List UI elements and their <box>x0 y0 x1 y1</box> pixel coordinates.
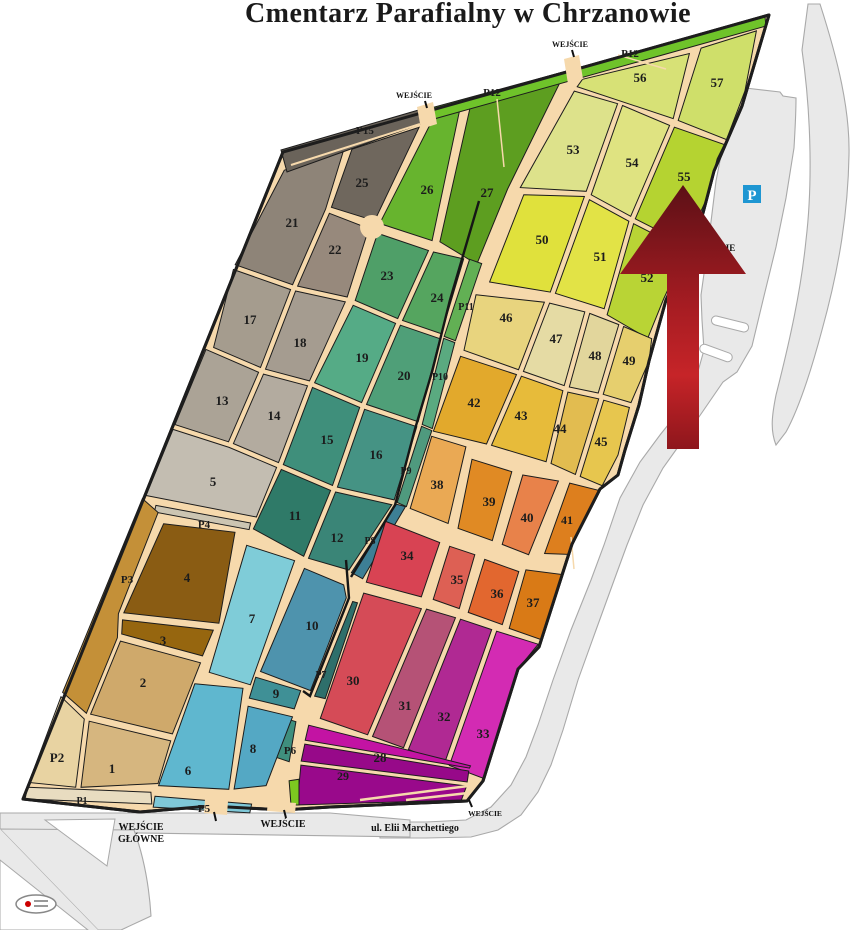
svg-text:51: 51 <box>594 249 607 264</box>
svg-text:53: 53 <box>567 142 581 157</box>
svg-text:45: 45 <box>595 434 609 449</box>
svg-text:1: 1 <box>109 761 116 776</box>
svg-text:18: 18 <box>294 335 308 350</box>
svg-text:33: 33 <box>477 726 491 741</box>
svg-text:11: 11 <box>289 508 301 523</box>
svg-text:P11: P11 <box>458 302 474 313</box>
svg-text:36: 36 <box>491 586 505 601</box>
svg-text:P4: P4 <box>198 519 211 531</box>
svg-text:15: 15 <box>321 432 335 447</box>
svg-text:WEJŚCIE: WEJŚCIE <box>118 821 163 833</box>
svg-text:22: 22 <box>329 242 342 257</box>
svg-text:55: 55 <box>678 169 692 184</box>
svg-text:41: 41 <box>561 513 573 527</box>
svg-text:56: 56 <box>634 70 648 85</box>
svg-text:35: 35 <box>451 572 465 587</box>
svg-text:P12: P12 <box>621 48 639 60</box>
svg-text:16: 16 <box>370 447 384 462</box>
svg-text:40: 40 <box>521 510 534 525</box>
svg-text:ul. Elii Marchettiego: ul. Elii Marchettiego <box>371 823 459 834</box>
svg-text:54: 54 <box>626 155 640 170</box>
svg-text:P7: P7 <box>315 670 326 681</box>
svg-text:8: 8 <box>250 741 257 756</box>
svg-text:47: 47 <box>550 331 564 346</box>
svg-text:42: 42 <box>468 395 481 410</box>
svg-text:7: 7 <box>249 611 256 626</box>
svg-text:32: 32 <box>438 709 451 724</box>
svg-text:Cmentarz Parafialny w Chrzanow: Cmentarz Parafialny w Chrzanowie <box>245 0 691 29</box>
svg-text:26: 26 <box>421 182 435 197</box>
svg-text:49: 49 <box>623 353 637 368</box>
svg-text:12: 12 <box>331 530 344 545</box>
svg-text:38: 38 <box>431 477 445 492</box>
svg-text:P5: P5 <box>198 803 211 815</box>
svg-text:4: 4 <box>184 570 191 585</box>
svg-text:27: 27 <box>481 185 495 200</box>
svg-text:34: 34 <box>401 548 415 563</box>
svg-text:6: 6 <box>185 763 192 778</box>
svg-text:14: 14 <box>268 408 282 423</box>
svg-text:P8: P8 <box>364 536 375 547</box>
svg-text:48: 48 <box>589 348 603 363</box>
svg-text:50: 50 <box>536 232 549 247</box>
svg-text:17: 17 <box>244 312 258 327</box>
svg-text:30: 30 <box>347 673 360 688</box>
svg-text:P2: P2 <box>50 750 64 765</box>
svg-text:28: 28 <box>374 750 388 765</box>
svg-text:P: P <box>747 188 756 204</box>
svg-text:57: 57 <box>711 75 725 90</box>
svg-text:WEJŚCIE: WEJŚCIE <box>552 39 588 49</box>
svg-text:WEJŚCIE: WEJŚCIE <box>468 808 502 818</box>
svg-text:19: 19 <box>356 350 370 365</box>
svg-text:23: 23 <box>381 268 395 283</box>
svg-text:GŁÓWNE: GŁÓWNE <box>118 833 164 845</box>
svg-text:21: 21 <box>286 215 299 230</box>
svg-text:WEJŚCIE: WEJŚCIE <box>260 818 305 830</box>
svg-text:29: 29 <box>337 769 349 783</box>
svg-text:39: 39 <box>483 494 497 509</box>
svg-text:P15: P15 <box>356 125 374 137</box>
svg-text:44: 44 <box>554 421 568 436</box>
svg-text:P12: P12 <box>483 87 501 99</box>
svg-text:10: 10 <box>306 618 319 633</box>
svg-text:13: 13 <box>216 393 230 408</box>
svg-text:25: 25 <box>356 175 370 190</box>
svg-text:P9: P9 <box>400 466 411 477</box>
svg-text:31: 31 <box>399 698 412 713</box>
svg-text:43: 43 <box>515 408 529 423</box>
svg-text:2: 2 <box>140 675 147 690</box>
svg-text:P3: P3 <box>121 574 134 586</box>
svg-text:3: 3 <box>160 633 167 648</box>
svg-text:P10: P10 <box>432 372 448 383</box>
svg-text:WEJŚCIE: WEJŚCIE <box>396 90 432 100</box>
svg-text:46: 46 <box>500 310 514 325</box>
svg-text:9: 9 <box>273 686 280 701</box>
svg-text:5: 5 <box>210 474 217 489</box>
svg-text:37: 37 <box>527 595 541 610</box>
svg-text:P6: P6 <box>284 745 297 757</box>
svg-text:P1: P1 <box>76 796 87 807</box>
svg-text:24: 24 <box>431 290 445 305</box>
svg-text:20: 20 <box>398 368 411 383</box>
